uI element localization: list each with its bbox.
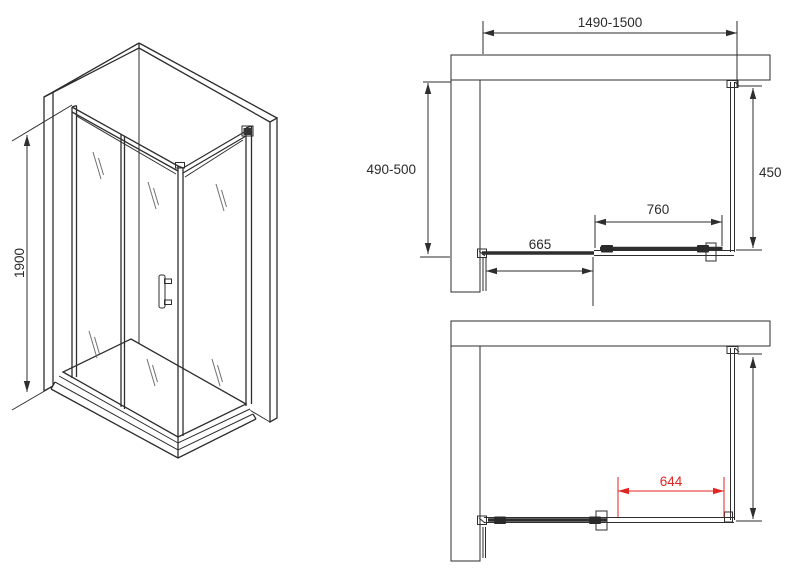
top-plan-dimensions: 1490-1500 490-500 450 760 665 [366, 15, 781, 306]
top-plan-side-panel [727, 81, 739, 253]
door-track [594, 251, 734, 256]
door-roller-right-open [589, 517, 601, 525]
bottom-plan-view: 644 [451, 321, 770, 561]
side-panel-depth-label: 450 [759, 165, 782, 180]
bottom-plan-left-wall [451, 346, 480, 561]
top-plan-back-wall [451, 55, 770, 80]
door-roller-right [697, 245, 709, 253]
top-plan-left-wall [451, 80, 480, 292]
door-opening-width-label: 644 [660, 474, 683, 489]
door-roller-left-open [494, 517, 506, 525]
height-dimension-label: 1900 [12, 248, 27, 278]
bottom-plan-dimensions: 644 [618, 354, 762, 521]
door-width-label: 760 [647, 202, 670, 217]
bottom-plan-back-wall [451, 321, 770, 346]
fixed-panel-width-label: 665 [529, 237, 552, 252]
bottom-plan-walls [451, 321, 770, 561]
door-handle [159, 275, 172, 308]
bottom-plan-side-panel [725, 347, 740, 523]
height-dimension: 1900 [12, 105, 72, 410]
door-roller-left [601, 245, 613, 253]
overall-width-label: 1490-1500 [578, 15, 643, 30]
wall-depth-label: 490-500 [366, 162, 416, 177]
top-plan-walls [451, 55, 770, 292]
wall-profile-bracket-fill [244, 128, 252, 135]
shower-enclosure-drawing: 1900 1490-1500 [0, 0, 800, 582]
bottom-plan-door-assembly [478, 511, 735, 558]
top-plan-door-assembly [478, 243, 735, 291]
top-plan-view: 1490-1500 490-500 450 760 665 [366, 15, 781, 306]
technical-drawing-page: 1900 1490-1500 [0, 0, 800, 582]
isometric-view: 1900 [12, 43, 277, 458]
shower-tray [51, 339, 256, 458]
